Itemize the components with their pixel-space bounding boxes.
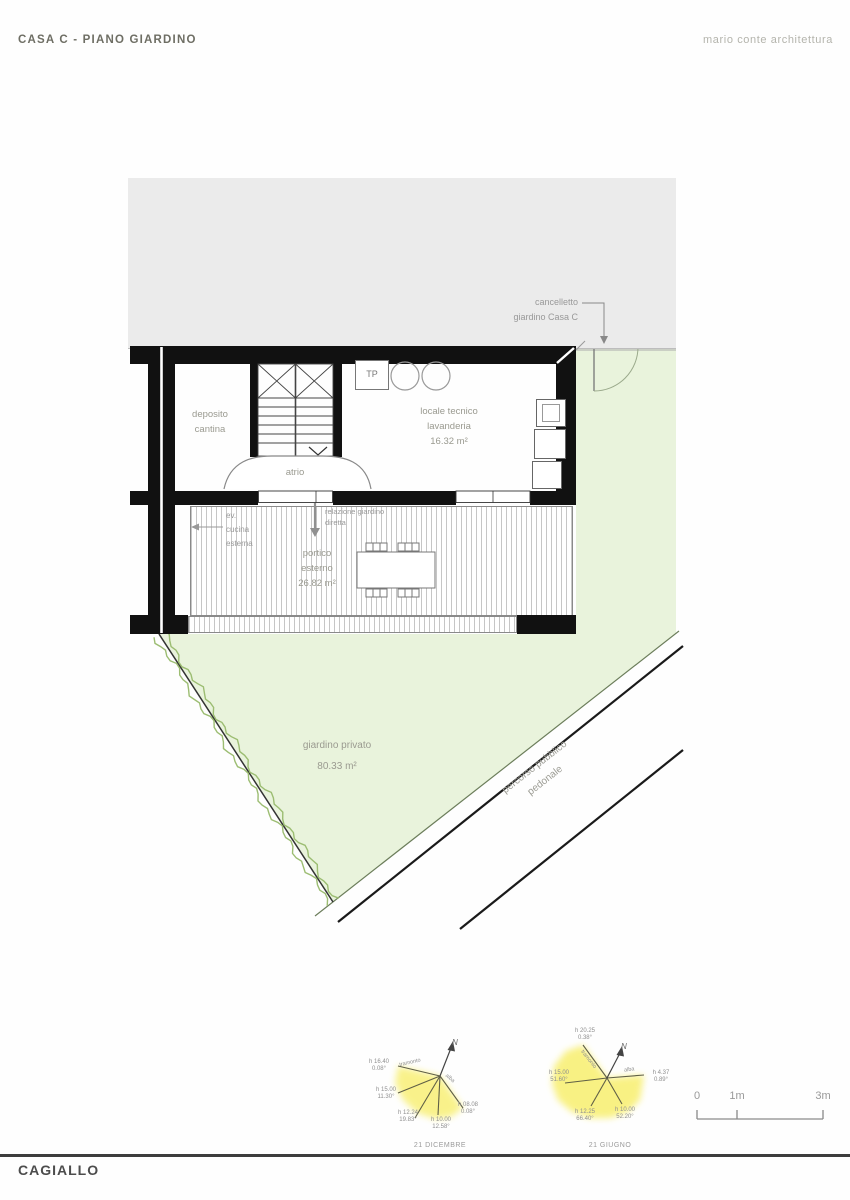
staircase	[258, 364, 333, 456]
cancelletto-label: cancelletto giardino Casa C	[470, 295, 578, 325]
sun-point-label: h 12.2566.40°	[568, 1109, 602, 1123]
deposito-label: deposito cantina	[177, 407, 243, 437]
wall-north	[130, 346, 576, 364]
scale-tick-label: 3m	[812, 1090, 834, 1102]
stair-direction-arrow	[309, 447, 327, 455]
scale-tick-label: 1m	[726, 1090, 748, 1102]
stair-wall-left	[250, 364, 258, 457]
cabinet	[534, 429, 566, 459]
upper-floor-mass	[128, 178, 676, 349]
locale-tecnico-label: locale tecnico lavanderia 16.32 m²	[393, 404, 505, 449]
sun-point-label: h 16.400.08°	[363, 1059, 395, 1073]
relazione-label: relazione giardino diretta	[325, 506, 417, 528]
scale-tick-label: 0	[690, 1090, 704, 1102]
washer-circle	[391, 362, 419, 390]
sheet-title: CASA C - PIANO GIARDINO	[18, 34, 197, 46]
glazed-door	[456, 491, 530, 503]
tramonto-word: tramonto	[579, 1049, 606, 1081]
cabinet-inner	[542, 404, 560, 422]
footer-rule	[0, 1154, 850, 1157]
sun-point-label: h 10.0012.58°	[425, 1117, 457, 1131]
tp-box: TP	[355, 360, 389, 390]
north-label: N	[452, 1038, 458, 1047]
path-edge-line-2	[460, 750, 683, 929]
sun-point-label: h 12.2419.83°	[392, 1110, 424, 1124]
alba-word: alba	[444, 1073, 466, 1093]
portico-deck-edge	[188, 616, 517, 633]
wall-middle-segment	[530, 491, 576, 505]
north-arrow	[607, 1053, 620, 1078]
sun-point-label: h 4.370.89°	[646, 1070, 676, 1084]
washer-circle	[422, 362, 450, 390]
tramonto-word: tramonto	[399, 1054, 437, 1068]
wall-middle-segment	[130, 491, 258, 505]
drawing-sheet: CASA C - PIANO GIARDINO mario conte arch…	[0, 0, 850, 1200]
sun-point-label: h 15.0051.60°	[542, 1070, 576, 1084]
wall-west	[148, 346, 175, 634]
wall-south-pier	[130, 615, 188, 634]
atrio-label: atrio	[265, 465, 325, 480]
sun-point-label: h 08.080.08°	[452, 1102, 484, 1116]
percorso-label: percorso pubblico pedonale	[463, 708, 618, 839]
sun-point-label: h 10.0052.20°	[608, 1107, 642, 1121]
giardino-label: giardino privato 80.33 m²	[287, 735, 387, 777]
north-label: N	[621, 1042, 627, 1051]
scale-bar	[697, 1110, 823, 1119]
cucina-esterna-label: ev. cucina esterna	[226, 509, 276, 551]
wall-middle-segment	[333, 491, 456, 505]
gate-swing-arc	[594, 347, 638, 391]
cabinet	[532, 461, 562, 489]
stair-wall-right	[333, 364, 342, 457]
north-arrow	[440, 1048, 451, 1076]
sun-point-label: h 20.250.38°	[568, 1028, 602, 1042]
sun-caption: 21 DICEMBRE	[405, 1142, 475, 1149]
wall-south-pier	[517, 615, 576, 634]
sun-point-label: h 15.0011.30°	[370, 1087, 402, 1101]
portico-label: portico esterno 26.82 m²	[277, 546, 357, 591]
sun-caption: 21 GIUGNO	[575, 1142, 645, 1149]
glazed-door	[259, 491, 333, 503]
studio-name: mario conte architettura	[703, 34, 833, 46]
location-label: CAGIALLO	[18, 1162, 99, 1178]
